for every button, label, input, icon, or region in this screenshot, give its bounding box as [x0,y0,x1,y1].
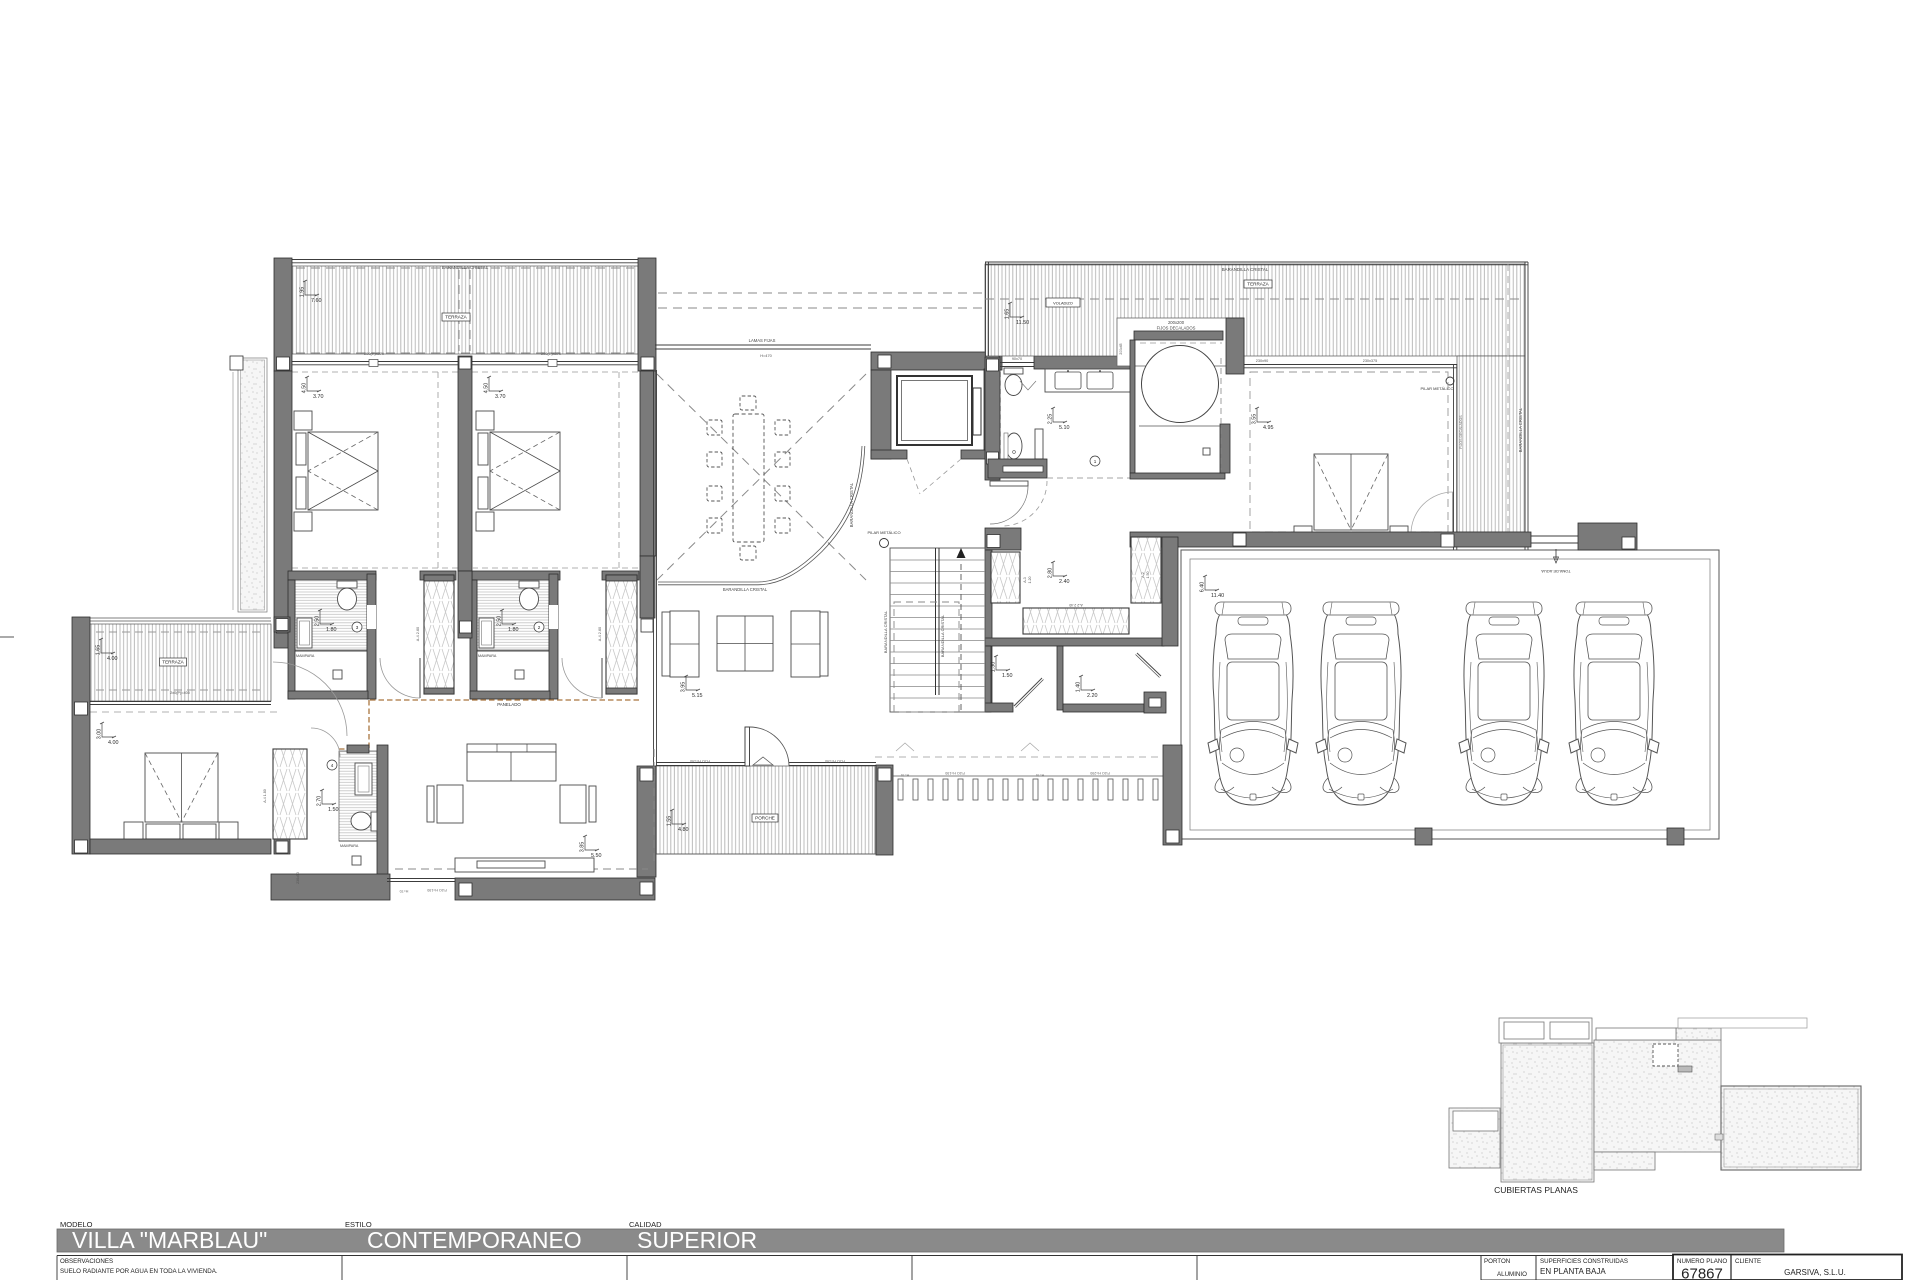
svg-text:1.80: 1.80 [326,627,337,633]
svg-text:1.50: 1.50 [328,807,339,813]
svg-text:1.65: 1.65 [96,645,102,656]
svg-text:7.60: 7.60 [311,298,322,304]
svg-text:3.70: 3.70 [495,394,506,400]
svg-text:200x45: 200x45 [1119,343,1123,354]
svg-text:FIJO H=190: FIJO H=190 [825,759,845,763]
svg-text:A-4 1.80: A-4 1.80 [263,789,267,803]
svg-text:CLIENTE: CLIENTE [1735,1258,1761,1265]
svg-text:FIJO H=190: FIJO H=190 [427,888,446,892]
svg-text:A-2: A-2 [1141,572,1145,578]
svg-text:2.20: 2.20 [1087,693,1098,699]
svg-text:MAMPARA: MAMPARA [296,654,315,658]
svg-text:SUPERIOR: SUPERIOR [637,1227,757,1253]
svg-text:2.40: 2.40 [1059,579,1070,585]
svg-text:4.00: 4.00 [108,740,119,746]
svg-text:3.95: 3.95 [681,682,687,693]
svg-text:1: 1 [1094,459,1097,464]
svg-text:PILAR METÁLICO: PILAR METÁLICO [867,530,900,535]
svg-text:BARANDILLA CRISTAL: BARANDILLA CRISTAL [1518,407,1523,452]
svg-text:LAMAS FIJAS: LAMAS FIJAS [749,338,776,343]
svg-text:BARANDILLA CRISTAL: BARANDILLA CRISTAL [849,482,854,527]
svg-text:NUMERO PLANO: NUMERO PLANO [1677,1258,1727,1265]
svg-text:230x375: 230x375 [1363,359,1378,363]
svg-text:200x200: 200x200 [1168,320,1185,325]
svg-text:1.20: 1.20 [1028,577,1032,584]
svg-text:BARANDILLA CRISTAL: BARANDILLA CRISTAL [940,614,945,657]
svg-text:BARANDILLA CRISTAL: BARANDILLA CRISTAL [723,587,768,592]
svg-text:4.80: 4.80 [678,827,689,833]
svg-text:PANELADO: PANELADO [497,702,521,707]
svg-text:3.70: 3.70 [313,394,324,400]
svg-text:A-4 2.60: A-4 2.60 [416,627,420,641]
svg-text:3.55: 3.55 [1252,414,1258,425]
svg-text:A-2 2.40: A-2 2.40 [1069,603,1083,607]
svg-text:200(P)x370: 200(P)x370 [541,351,562,356]
svg-text:1.55: 1.55 [667,816,673,827]
svg-text:2.25: 2.25 [1048,414,1054,425]
svg-text:3: 3 [356,625,359,630]
svg-text:2.70: 2.70 [317,796,323,807]
svg-text:5.50: 5.50 [591,853,602,859]
svg-text:2x0(P)=400: 2x0(P)=400 [170,691,190,695]
svg-text:1.50: 1.50 [1146,572,1150,579]
svg-text:4.00: 4.00 [107,656,118,662]
svg-text:FIJOS DECALADOS: FIJOS DECALADOS [1459,415,1463,449]
svg-text:TERRAZA: TERRAZA [445,315,467,320]
svg-text:OBSERVACIONES: OBSERVACIONES [60,1258,113,1265]
svg-text:TERRAZA: TERRAZA [1247,282,1269,287]
svg-text:VILLA "MARBLAU": VILLA "MARBLAU" [72,1227,267,1253]
svg-text:A-3: A-3 [1023,577,1027,583]
svg-text:1.50: 1.50 [1002,673,1013,679]
svg-text:FIJO H=190: FIJO H=190 [945,771,964,775]
svg-text:6.40: 6.40 [1200,582,1206,593]
svg-text:ALUMINIO: ALUMINIO [1497,1271,1527,1278]
svg-text:1.40: 1.40 [1076,682,1082,693]
svg-text:BARANDILLA CRISTAL: BARANDILLA CRISTAL [883,610,888,653]
svg-text:2.80: 2.80 [1048,568,1054,579]
svg-text:1.65: 1.65 [1005,309,1011,320]
svg-text:5.15: 5.15 [692,693,703,699]
svg-text:67867: 67867 [1681,1266,1723,1280]
svg-text:MAMPARA: MAMPARA [478,654,497,658]
svg-text:H=70: H=70 [1036,773,1044,777]
svg-text:90x70: 90x70 [1012,357,1022,361]
svg-text:4: 4 [331,763,334,768]
svg-text:2: 2 [538,625,541,630]
svg-text:SUPERFICIES CONSTRUIDAS: SUPERFICIES CONSTRUIDAS [1540,1258,1628,1265]
svg-text:3.85: 3.85 [580,842,586,853]
svg-text:MAMPARA: MAMPARA [340,844,359,848]
svg-text:11.50: 11.50 [1016,320,1029,326]
svg-text:FIJO H=190: FIJO H=190 [690,759,710,763]
svg-text:FIJO H=290: FIJO H=290 [1090,771,1109,775]
svg-text:SUELO RADIANTE POR AGUA EN TOD: SUELO RADIANTE POR AGUA EN TODA LA VIVIE… [60,1268,218,1275]
svg-text:230x90: 230x90 [1256,359,1268,363]
svg-text:H=470: H=470 [760,353,772,358]
svg-text:EN PLANTA BAJA: EN PLANTA BAJA [1540,1267,1606,1276]
svg-text:BARANDILLA CRISTAL: BARANDILLA CRISTAL [1222,267,1269,272]
svg-text:H=70: H=70 [901,773,909,777]
svg-text:4.95: 4.95 [1263,425,1274,431]
svg-text:3.00: 3.00 [97,729,103,740]
svg-text:CUBIERTAS PLANAS: CUBIERTAS PLANAS [1494,1185,1578,1195]
svg-text:VOLADIZO: VOLADIZO [1053,301,1073,306]
svg-text:4.50: 4.50 [302,383,308,394]
svg-text:H=70: H=70 [400,889,409,893]
svg-text:FIJOS DECALADOS: FIJOS DECALADOS [1157,326,1196,331]
svg-text:4.50: 4.50 [484,383,490,394]
svg-text:1.80: 1.80 [508,627,519,633]
svg-text:200(P)x370: 200(P)x370 [364,351,385,356]
svg-text:PORTON: PORTON [1484,1258,1510,1265]
svg-text:2.50: 2.50 [315,616,321,627]
svg-text:A-4 2.60: A-4 2.60 [598,627,602,641]
svg-text:1.30: 1.30 [991,662,997,673]
svg-text:1.95: 1.95 [300,287,306,298]
svg-text:TERRAZA: TERRAZA [162,660,184,665]
svg-text:5.10: 5.10 [1059,425,1070,431]
svg-text:2.50: 2.50 [497,616,503,627]
svg-text:GARSIVA, S.L.U.: GARSIVA, S.L.U. [1784,1268,1846,1277]
svg-text:CONTEMPORANEO: CONTEMPORANEO [367,1227,582,1253]
svg-text:TOMA DE AGUA: TOMA DE AGUA [1541,569,1571,574]
svg-text:PILAR METÁLICO: PILAR METÁLICO [1420,386,1453,391]
svg-text:230x50: 230x50 [296,872,300,884]
svg-text:PORCHE: PORCHE [755,816,775,821]
svg-text:11.40: 11.40 [1211,593,1224,599]
